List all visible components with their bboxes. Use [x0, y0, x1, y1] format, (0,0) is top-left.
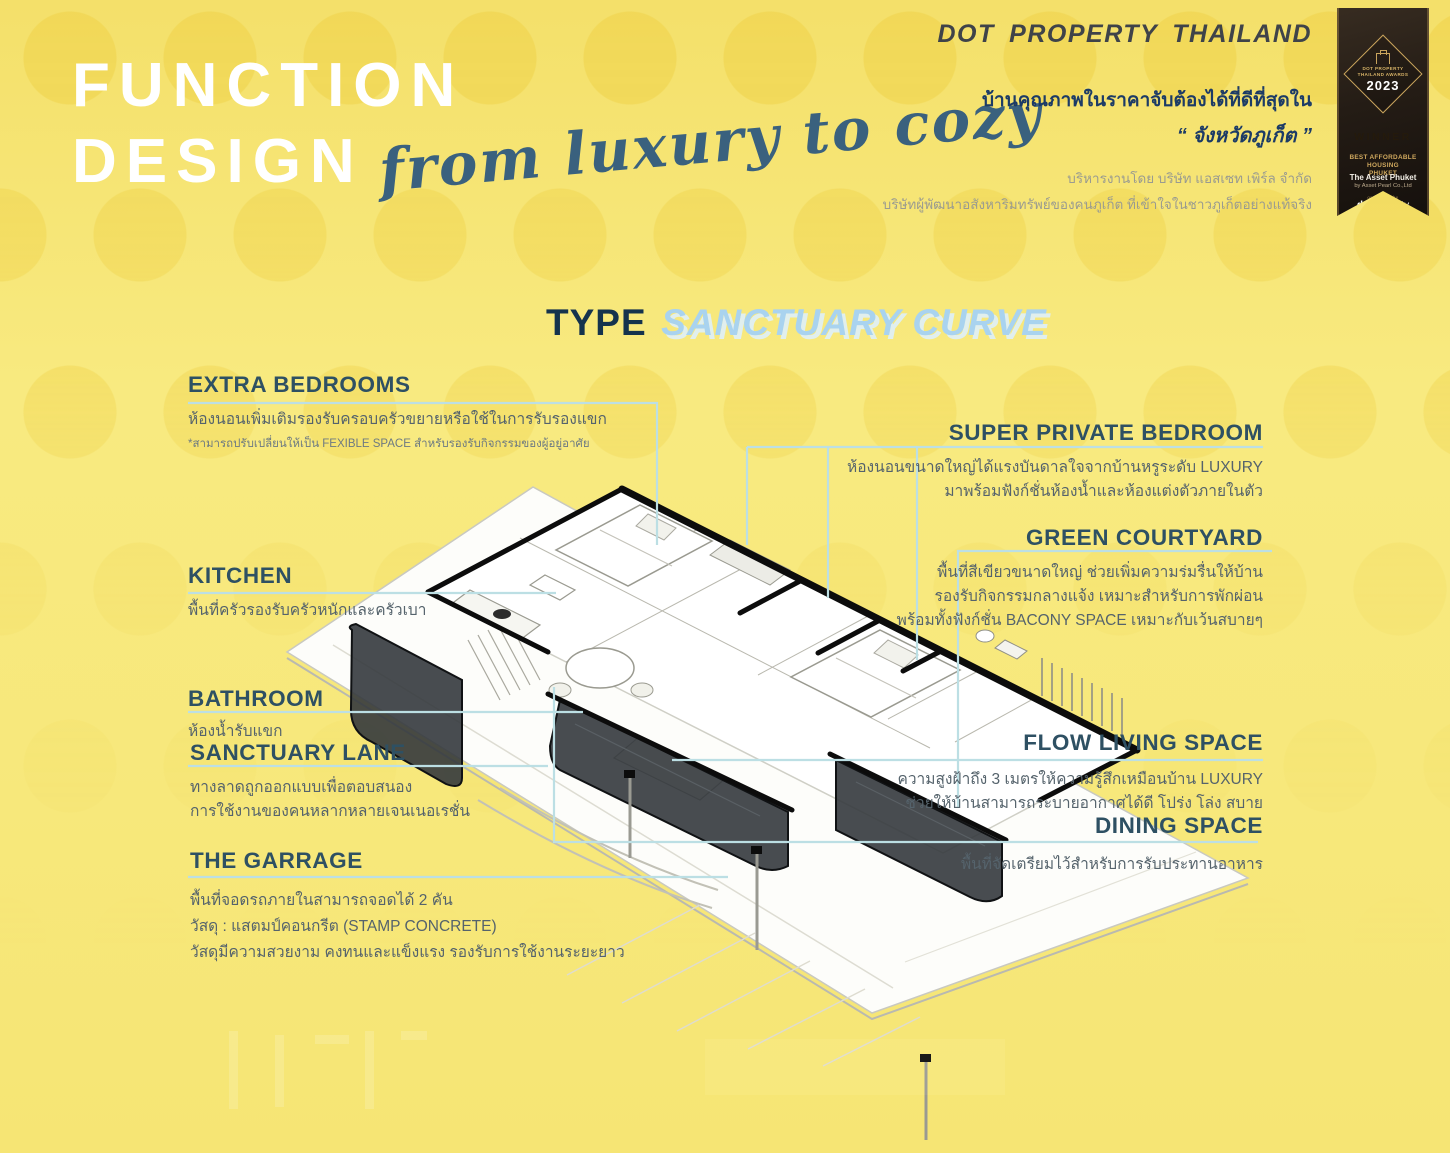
- callout-text: รองรับกิจกรรมกลางแจ้ง เหมาะสำหรับการพักผ…: [897, 585, 1263, 609]
- callout-text: พร้อมทั้งฟังก์ชั่น BACONY SPACE เหมาะกับ…: [897, 609, 1263, 633]
- building-icon: [1376, 53, 1390, 64]
- callout-text: การใช้งานของคนหลากหลายเจนเนอเรชั่น: [190, 800, 470, 824]
- callout-title: SUPER PRIVATE BEDROOM: [847, 420, 1263, 446]
- callout-note: *สามารถปรับเปลี่ยนให้เป็น FEXIBLE SPACE …: [188, 432, 607, 456]
- callout-green-courtyard: GREEN COURTYARD พื้นที่สีเขียวขนาดใหญ่ ช…: [897, 525, 1263, 633]
- callout-flow-living-space: FLOW LIVING SPACE ความสูงฝ้าถึง 3 เมตรให…: [897, 730, 1263, 816]
- callout-title: FLOW LIVING SPACE: [897, 730, 1263, 756]
- callout-title: KITCHEN: [188, 563, 426, 589]
- callout-extra-bedrooms: EXTRA BEDROOMS ห้องนอนเพิ่มเติมรองรับครอ…: [188, 372, 607, 456]
- brand-tagline-2: “ จังหวัดภูเก็ต ”: [883, 119, 1312, 151]
- brand-developer-note: บริษัทผู้พัฒนาอสังหาริมทรัพย์ของคนภูเก็ต…: [883, 193, 1312, 215]
- callout-text: ห้องนอนเพิ่มเติมรองรับครอบครัวขยายหรือใช…: [188, 408, 607, 432]
- callout-text: พื้นที่สีเขียวขนาดใหญ่ ช่วยเพิ่มความร่มร…: [897, 561, 1263, 585]
- main-title-line1: FUNCTION: [72, 48, 464, 124]
- callout-text: ห้องนอนขนาดใหญ่ได้แรงบันดาลใจจากบ้านหรูร…: [847, 456, 1263, 480]
- callout-title: THE GARRAGE: [190, 848, 625, 874]
- award-year: 2023: [1367, 78, 1400, 93]
- bath-fixtures: [976, 630, 1027, 659]
- callout-text: ความสูงฝ้าถึง 3 เมตรให้ความรู้สึกเหมือนบ…: [897, 768, 1263, 792]
- callout-title: SANCTUARY LANE: [190, 740, 470, 766]
- callout-text: พื้นที่จัดเตรียมไว้สำหรับการรับประทานอาห…: [961, 853, 1263, 877]
- callout-dining-space: DINING SPACE พื้นที่จัดเตรียมไว้สำหรับกา…: [961, 813, 1263, 877]
- brand-tagline-1: บ้านคุณภาพในราคาจับต้องได้ที่ดีที่สุดใน: [883, 85, 1312, 115]
- award-project: The Asset Phuket: [1337, 173, 1429, 182]
- callout-title: DINING SPACE: [961, 813, 1263, 839]
- callout-text: มาพร้อมฟังก์ชั่นห้องน้ำและห้องแต่งตัวภาย…: [847, 480, 1263, 504]
- type-prefix: TYPE: [546, 302, 647, 343]
- callout-title: BATHROOM: [188, 686, 324, 712]
- callout-text: ทางลาดถูกออกแบบเพื่อตอบสนอง: [190, 776, 470, 800]
- callout-text: วัสดุ : แสตมป์คอนกรีต (STAMP CONCRETE): [190, 914, 625, 940]
- callout-text: วัสดุมีความสวยงาม คงทนและแข็งแรง รองรับก…: [190, 940, 625, 966]
- callout-title: GREEN COURTYARD: [897, 525, 1263, 551]
- callout-title: EXTRA BEDROOMS: [188, 372, 607, 398]
- callout-text: พื้นที่จอดรถภายในสามารถจอดได้ 2 คัน: [190, 888, 625, 914]
- award-winner-band: WINNER: [1344, 128, 1422, 145]
- callout-text: พื้นที่ครัวรองรับครัวหนักและครัวเบา: [188, 599, 426, 623]
- type-title: TYPE SANCTUARY CURVE: [546, 302, 1047, 344]
- brand-name: DOT PROPERTY THAILAND: [883, 20, 1312, 49]
- callout-sanctuary-lane: SANCTUARY LANE ทางลาดถูกออกแบบเพื่อตอบสน…: [190, 740, 470, 824]
- poster-canvas: FUNCTION DESIGN from luxury to cozy DOT …: [0, 0, 1450, 1153]
- brand-block: DOT PROPERTY THAILAND บ้านคุณภาพในราคาจั…: [883, 20, 1312, 215]
- callout-super-private-bedroom: SUPER PRIVATE BEDROOM ห้องนอนขนาดใหญ่ได้…: [847, 420, 1263, 504]
- award-ribbon: DOT PROPERTY THAILAND AWARDS 2023 WINNER…: [1337, 8, 1429, 216]
- type-name: SANCTUARY CURVE: [661, 302, 1047, 343]
- callout-kitchen: KITCHEN พื้นที่ครัวรองรับครัวหนักและครัว…: [188, 563, 426, 623]
- callout-bathroom: BATHROOM ห้องน้ำรับแขก: [188, 686, 324, 744]
- callout-the-garrage: THE GARRAGE พื้นที่จอดรถภายในสามารถจอดได…: [190, 848, 625, 966]
- award-company: by Asset Pearl Co.,Ltd: [1337, 183, 1429, 189]
- brand-managed-by: บริหารงานโดย บริษัท แอสเซท เพิร์ล จำกัด: [883, 167, 1312, 189]
- award-event: DOT PROPERTY THAILAND AWARDS: [1356, 66, 1410, 77]
